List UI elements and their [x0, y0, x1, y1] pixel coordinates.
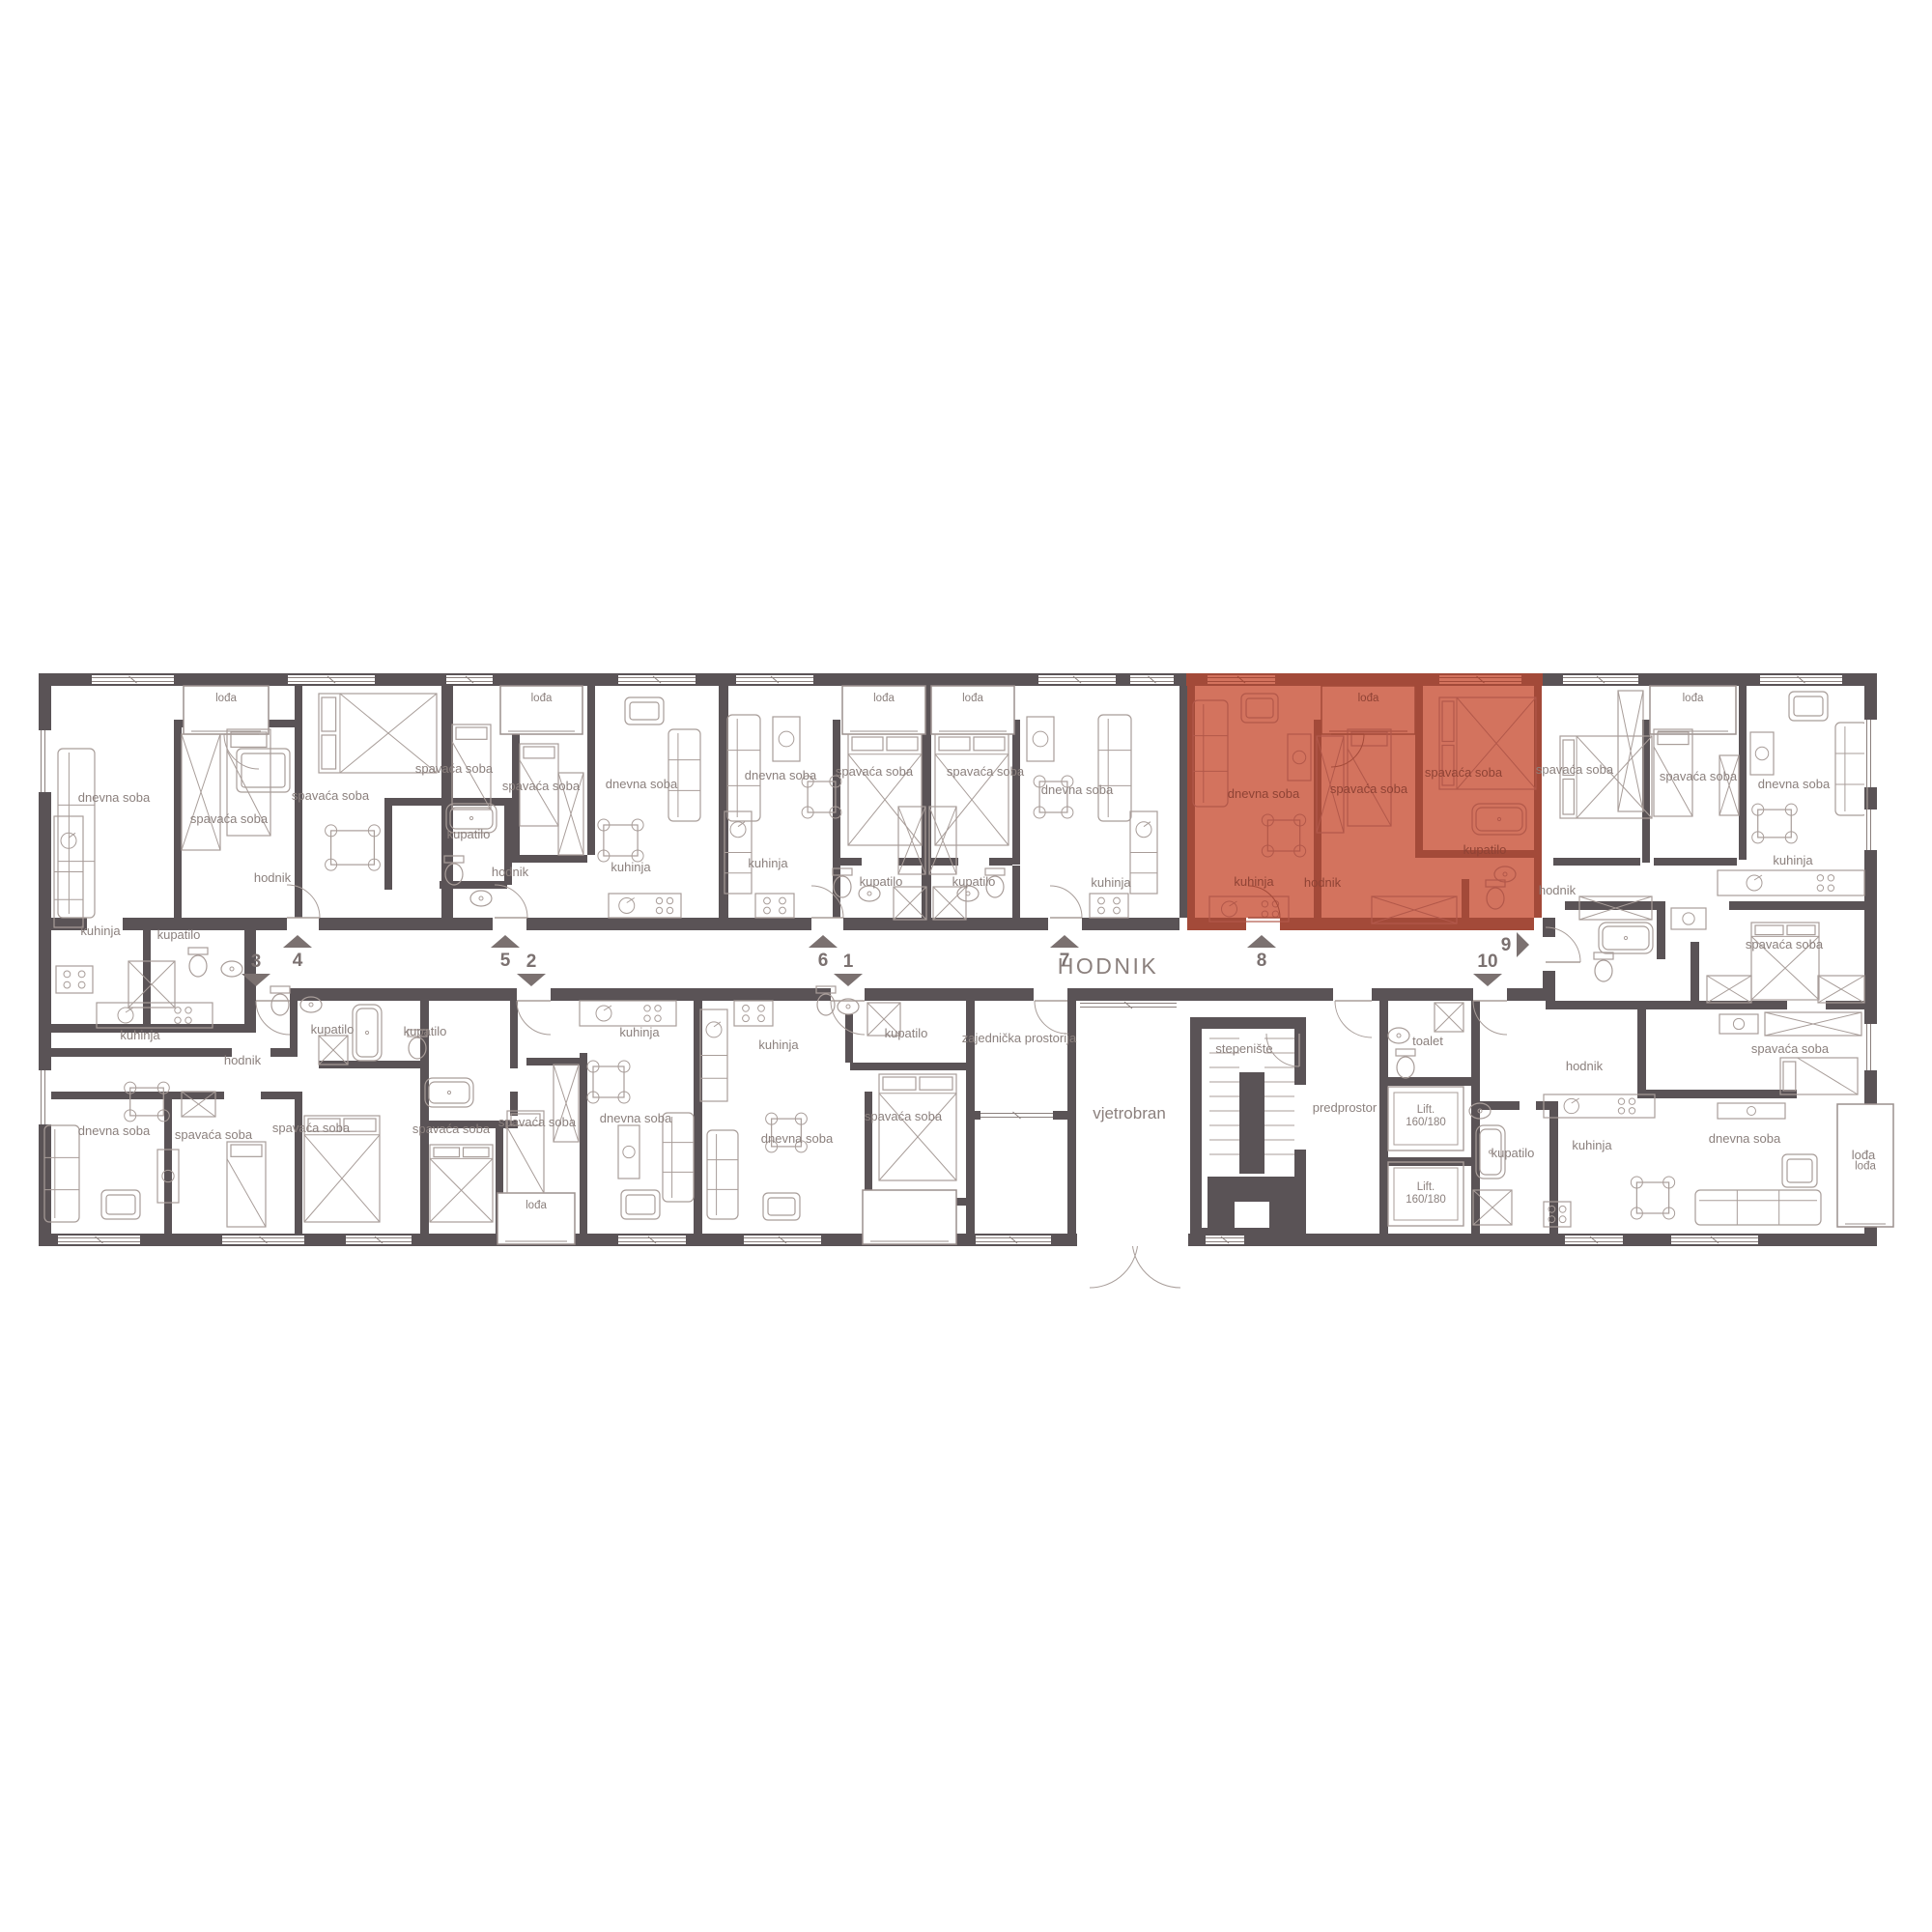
wall: [1549, 1101, 1558, 1234]
kitchen-part: [656, 897, 662, 903]
bedd-part: [1755, 925, 1783, 935]
table4-part: [331, 831, 375, 865]
wall: [1543, 971, 1555, 1001]
armchair-part: [630, 702, 659, 720]
entrance-arrow-icon: [1473, 974, 1502, 986]
wall: [1654, 858, 1737, 866]
desk-part: [623, 1146, 635, 1157]
room-label: dnevna soba: [606, 777, 678, 791]
kitchen-part: [619, 898, 635, 914]
room-label: kupatilo: [157, 927, 201, 942]
tub-part: [365, 1031, 368, 1034]
furniture-bedd: [1751, 923, 1819, 1000]
furniture-shower: [319, 1036, 348, 1065]
furniture-wardrobe: [1818, 976, 1864, 1003]
door-swing: [1335, 1001, 1372, 1037]
door-swing: [256, 1001, 290, 1035]
apartment-marker: 6: [809, 935, 838, 971]
wall: [1826, 1001, 1864, 1009]
room-label: dnevna soba: [78, 1123, 151, 1138]
sink-basin: [470, 891, 492, 906]
room-label: spavaća soba: [292, 788, 370, 803]
hob-part: [755, 894, 794, 918]
room-label: zajednička prostorija: [962, 1031, 1077, 1045]
furniture-shower: [894, 887, 926, 920]
room-label: kuhinja: [619, 1025, 660, 1039]
hob-part: [1090, 894, 1128, 918]
door-arc: [256, 1001, 290, 1035]
room-label: spavaća soba: [1746, 937, 1824, 952]
loggia: lođa: [1321, 686, 1415, 734]
staircase-wall: [1239, 1072, 1264, 1174]
loggia-label: lođa: [1358, 693, 1379, 704]
bedd-part: [887, 737, 918, 751]
wall: [1012, 720, 1020, 865]
furniture-sink: [470, 891, 492, 906]
lift-label: Lift.160/180: [1406, 1104, 1446, 1128]
entrance-opening: [1077, 1234, 1188, 1246]
hob-part: [1559, 1216, 1566, 1223]
toilet-part: [270, 986, 290, 993]
loggia: lođa: [497, 1193, 575, 1244]
sofa-part: [58, 749, 95, 918]
beds-part: [507, 1127, 544, 1193]
highlight-wall: [1187, 686, 1195, 918]
wall: [587, 686, 595, 855]
room-label: kuhinja: [80, 923, 121, 938]
hob-part: [780, 897, 786, 904]
kitchen-part: [1136, 822, 1151, 838]
entrance-arrow-icon: [1517, 932, 1529, 957]
sofa-part: [707, 1130, 738, 1219]
wall: [833, 866, 840, 918]
table4-part: [604, 825, 638, 856]
apartment-marker: 9: [1501, 932, 1529, 957]
furniture-wardrobe: [554, 1065, 579, 1142]
door-arc: [287, 885, 320, 918]
wall: [833, 858, 862, 866]
wall: [319, 918, 493, 930]
wall: [510, 1001, 518, 1068]
furniture-toilet: [1396, 1049, 1415, 1078]
room-label: hodnik: [224, 1053, 262, 1067]
room-label: dnevna soba: [761, 1131, 834, 1146]
hob-part: [743, 1005, 750, 1011]
wall: [694, 1001, 702, 1234]
room-label: kupatilo: [885, 1026, 928, 1040]
wall: [384, 798, 444, 806]
sofa-part: [663, 1113, 694, 1202]
wall: [51, 1092, 164, 1099]
kitchen-part: [118, 1008, 133, 1023]
beds-part: [231, 1145, 262, 1156]
furniture-toilet: [1594, 952, 1613, 981]
furniture-tub: [353, 1005, 382, 1061]
beds-part: [524, 747, 554, 758]
room-label: spavaća soba: [412, 1122, 491, 1136]
entrance-arrow-icon: [517, 974, 546, 986]
beds-part: [1780, 1058, 1858, 1094]
furniture-bedd: [848, 734, 922, 845]
elevator: Lift.160/180: [1388, 1087, 1463, 1151]
door-arc: [1050, 886, 1082, 918]
room-label: kupatilo: [860, 874, 903, 889]
door-swing: [1132, 1239, 1180, 1288]
apartment-number: 1: [843, 952, 854, 972]
furniture-bedd: [879, 1074, 956, 1180]
kitchen-part: [655, 1006, 661, 1011]
door-arc: [517, 1001, 551, 1035]
apartment-marker: 5: [491, 935, 520, 971]
hob-part: [764, 897, 771, 904]
room-label: kuhinja: [758, 1037, 799, 1052]
room-label: spavaća soba: [836, 764, 914, 779]
highlight-wall: [1187, 918, 1246, 930]
wall: [1471, 1101, 1520, 1110]
wall: [865, 988, 1034, 1001]
floor-plan-page: lođalođalođalođalođalođalođalođadnevna s…: [0, 0, 1932, 1932]
desk-part: [1747, 1107, 1756, 1116]
desk-part: [1733, 1018, 1744, 1029]
hob-part: [1559, 1206, 1566, 1212]
door-arc: [1132, 1239, 1180, 1288]
hob-part: [1114, 907, 1121, 914]
kitchen-part: [1747, 875, 1762, 891]
kitchen-part: [596, 1006, 611, 1021]
loggia: lođa: [842, 686, 925, 734]
tub-part: [450, 808, 493, 829]
door-arc: [1035, 1001, 1067, 1034]
furniture-kitchen: [580, 1001, 676, 1026]
loggia-label: lođa: [526, 1200, 547, 1211]
furniture-desk: [1671, 908, 1706, 929]
room-label: kupatilo: [1463, 842, 1507, 857]
furniture-hob: [56, 966, 93, 993]
bedd-part: [939, 737, 970, 751]
wall: [1067, 988, 1333, 1001]
armchair-part: [1794, 696, 1823, 716]
hob-part: [780, 907, 786, 914]
furniture-hob: [734, 1001, 773, 1026]
bedd-part: [852, 737, 883, 751]
wall: [1372, 988, 1473, 1001]
apartment-number: 5: [500, 951, 511, 971]
beds-part: [456, 727, 487, 739]
highlighted-apartment[interactable]: lođadnevna sobaspavaća sobaspavaća sobak…: [1186, 673, 1543, 930]
room-label: kupatilo: [447, 827, 491, 841]
furniture-wardrobe: [1719, 755, 1739, 815]
wall: [833, 720, 840, 865]
sink-part: [479, 896, 483, 900]
entrance-arrow-icon: [834, 974, 863, 986]
desk-part: [1027, 717, 1054, 761]
room-label: spavaća soba: [1536, 762, 1614, 777]
furniture-kitchen: [724, 811, 752, 894]
desk-part: [1033, 731, 1048, 747]
wall: [1379, 1077, 1480, 1086]
armchair-part: [106, 1195, 135, 1214]
room-label: spavaća soba: [1751, 1041, 1830, 1056]
kitchen-part: [1618, 1098, 1624, 1104]
room-label: spavaća soba: [1330, 781, 1408, 796]
beds-part: [227, 1142, 266, 1227]
room-label: spavaća soba: [498, 1115, 577, 1129]
furniture-desk: [1750, 732, 1774, 775]
kitchen-part: [580, 1001, 676, 1026]
wall: [1657, 901, 1665, 959]
sofa-part: [668, 729, 700, 821]
kitchen-part: [655, 1015, 661, 1021]
kitchen-part: [1564, 1098, 1578, 1113]
loggia-label: lođa: [962, 693, 983, 704]
desk-part: [1718, 1103, 1785, 1119]
entrance-arrow-icon: [1050, 935, 1079, 948]
kitchen-part: [1828, 875, 1833, 881]
door-arc: [1090, 1239, 1138, 1288]
desk-part: [1683, 913, 1694, 924]
highlight-wall: [1415, 686, 1423, 855]
kitchen-part: [1629, 1108, 1634, 1114]
furniture-armchair: [763, 1193, 800, 1220]
toilet-bowl: [1595, 960, 1612, 981]
wall: [1553, 858, 1640, 866]
wall: [1082, 918, 1179, 930]
building-floor-plan: lođalođalođalođalođalođalođalođadnevna s…: [0, 0, 1932, 1932]
hob-part: [734, 1001, 773, 1026]
wall: [1179, 686, 1187, 918]
kitchen-part: [644, 1015, 650, 1021]
desk-part: [1750, 732, 1774, 775]
wall: [850, 1063, 966, 1070]
apartment-number: 3: [251, 952, 262, 972]
door-swing: [517, 1001, 551, 1035]
wall: [580, 1053, 587, 1234]
kitchen-part: [667, 897, 672, 903]
bedd-part: [920, 1077, 952, 1090]
kitchen-part: [1618, 1108, 1624, 1114]
apartment-marker: 4: [283, 935, 312, 971]
loggia: [863, 1190, 956, 1244]
furniture-desk: [1719, 1014, 1758, 1034]
loggia: lođa: [184, 686, 269, 734]
loggia-label: lođa: [215, 693, 237, 704]
room-label: kupatilo: [952, 874, 996, 889]
furniture-bedd: [430, 1145, 493, 1222]
furniture-beds: [227, 1142, 266, 1227]
door-swing: [1050, 886, 1082, 918]
kitchen-part: [730, 822, 746, 838]
wall: [1637, 1090, 1797, 1098]
armchair-part: [625, 697, 664, 724]
furniture-hob: [1090, 894, 1128, 918]
wall: [1507, 988, 1546, 1001]
apartment-number: 2: [526, 952, 537, 972]
tub-part: [1603, 926, 1649, 950]
desk-part: [1719, 1014, 1758, 1034]
furniture-armchair: [625, 697, 664, 724]
furniture-shower: [128, 961, 175, 1008]
apartment-number: 8: [1257, 951, 1267, 971]
wall: [384, 798, 392, 890]
staircase-wall: [1190, 1017, 1306, 1029]
table4-part: [593, 1066, 624, 1097]
apartment-number: 6: [818, 951, 829, 971]
beds-part: [1783, 1062, 1796, 1091]
kitchen-part: [1629, 1098, 1634, 1104]
room-label: spavaća soba: [272, 1121, 351, 1135]
sink-part: [846, 1005, 850, 1009]
room-label: dnevna soba: [78, 790, 151, 805]
wall: [512, 855, 587, 863]
door-swing: [1035, 1001, 1067, 1034]
toilet-bowl: [1397, 1057, 1414, 1078]
wall: [1565, 901, 1657, 910]
bedd-part: [322, 697, 336, 731]
wall: [295, 1096, 302, 1234]
wall: [174, 720, 182, 918]
furniture-sink: [221, 961, 242, 977]
tub-part: [447, 1091, 450, 1094]
armchair-part: [626, 1195, 655, 1214]
beds-part: [1798, 1058, 1858, 1094]
kitchen-part: [185, 1008, 191, 1013]
room-label: spavaća soba: [190, 811, 269, 826]
apartment-marker: 10: [1473, 952, 1502, 986]
room-label: dnevna soba: [1228, 786, 1300, 801]
table4-part: [1758, 810, 1792, 838]
toilet-part: [1396, 1049, 1415, 1056]
bedd-part: [430, 1145, 493, 1222]
furniture-armchair: [1789, 692, 1828, 721]
furniture-sofa: [58, 749, 95, 918]
furniture-table4: [125, 1082, 170, 1122]
kitchen-part: [706, 1022, 722, 1037]
furniture-tub: [425, 1078, 473, 1107]
sofa-part: [1098, 715, 1131, 821]
room-label: kuhinja: [1773, 853, 1813, 867]
staircase-notch: [1235, 1202, 1269, 1228]
bedd-part: [1787, 925, 1815, 935]
furniture-sofa: [707, 1130, 738, 1219]
sofa-part: [1695, 1190, 1821, 1225]
hob-part: [743, 1015, 750, 1022]
door-swing: [495, 885, 527, 918]
sink-part: [230, 967, 234, 971]
furniture-desk: [618, 1125, 639, 1179]
room-label: stepenište: [1215, 1041, 1272, 1056]
staircase-wall: [1190, 1017, 1202, 1239]
kitchen-part: [175, 1017, 181, 1023]
toilet-part: [188, 948, 208, 954]
furniture-table4: [598, 819, 643, 862]
kitchen-part: [175, 1008, 181, 1013]
kitchen-part: [1828, 885, 1833, 891]
furniture-wardrobe: [1765, 1012, 1861, 1036]
toilet-bowl: [189, 955, 207, 977]
room-label: vjetrobran: [1093, 1104, 1166, 1122]
furniture-sofa: [668, 729, 700, 821]
wall: [989, 858, 1012, 866]
wall: [551, 988, 831, 1001]
furniture-hob: [755, 894, 794, 918]
furniture-table4: [1752, 804, 1798, 843]
room-label: kupatilo: [311, 1022, 355, 1037]
bedd-part: [322, 735, 336, 769]
room-label: dnevna soba: [600, 1111, 672, 1125]
staircase-wall: [1294, 1017, 1306, 1085]
armchair-part: [768, 1198, 795, 1215]
labels-layer: dnevna sobaspavaća sobaspavaća sobahodni…: [78, 761, 1876, 1162]
kitchen-part: [667, 907, 672, 913]
wall: [512, 734, 520, 855]
hob-part: [56, 966, 93, 993]
kitchen-part: [656, 907, 662, 913]
hob-part: [78, 981, 85, 988]
room-label: dnevna soba: [745, 768, 817, 782]
door-swing: [287, 885, 320, 918]
sink-basin: [221, 961, 242, 977]
loggia: lođa: [1837, 1104, 1893, 1227]
room-label: hodnik: [492, 865, 529, 879]
room-label: spavaća soba: [865, 1109, 943, 1123]
furniture-wardrobe: [1618, 691, 1643, 811]
door-arc: [1335, 1001, 1372, 1037]
kitchen-part: [185, 1017, 191, 1023]
room-label: hodnik: [1566, 1059, 1604, 1073]
loggia-label: lođa: [1683, 693, 1704, 704]
bedd-part: [1563, 780, 1574, 815]
apartment-marker: 1: [834, 952, 863, 986]
furniture-armchair: [101, 1190, 140, 1219]
room-label: lođa: [1852, 1148, 1876, 1162]
entrance-arrow-icon: [491, 935, 520, 948]
room-label: dnevna soba: [1709, 1131, 1781, 1146]
hob-part: [78, 971, 85, 978]
hob-part: [758, 1005, 765, 1011]
room-label: kuhinja: [611, 860, 651, 874]
furniture-bedd: [935, 734, 1009, 845]
wall: [1536, 1101, 1558, 1110]
room-label: hodnik: [1539, 883, 1577, 897]
furniture-kitchen: [1130, 811, 1157, 894]
room-label: spavaća soba: [1425, 765, 1503, 780]
hob-part: [64, 971, 71, 978]
wall: [845, 1014, 853, 1063]
wall: [256, 918, 287, 930]
room-label: dnevna soba: [1041, 782, 1114, 797]
bedd-part: [434, 1148, 460, 1157]
bedd-part: [974, 737, 1005, 751]
sink-basin: [1388, 1028, 1409, 1043]
room-label: kuhinja: [1234, 874, 1274, 889]
hob-part: [1098, 897, 1105, 904]
bedd-part: [883, 1077, 916, 1090]
room-label: hodnik: [1304, 875, 1342, 890]
hob-part: [1098, 907, 1105, 914]
furniture-sofa: [1695, 1190, 1821, 1225]
tub-part: [1624, 936, 1627, 939]
room-label: spavaća soba: [175, 1127, 253, 1142]
room-label: kupatilo: [1492, 1146, 1535, 1160]
apartment-marker: 2: [517, 952, 546, 986]
room-label: spavaća soba: [947, 764, 1025, 779]
wall: [1690, 942, 1699, 1001]
furniture-wardrobe: [1707, 976, 1751, 1003]
door-arc: [495, 885, 527, 918]
room-label: kuhinja: [748, 856, 788, 870]
furniture-table4: [1631, 1177, 1674, 1219]
kitchen-part: [1817, 885, 1823, 891]
